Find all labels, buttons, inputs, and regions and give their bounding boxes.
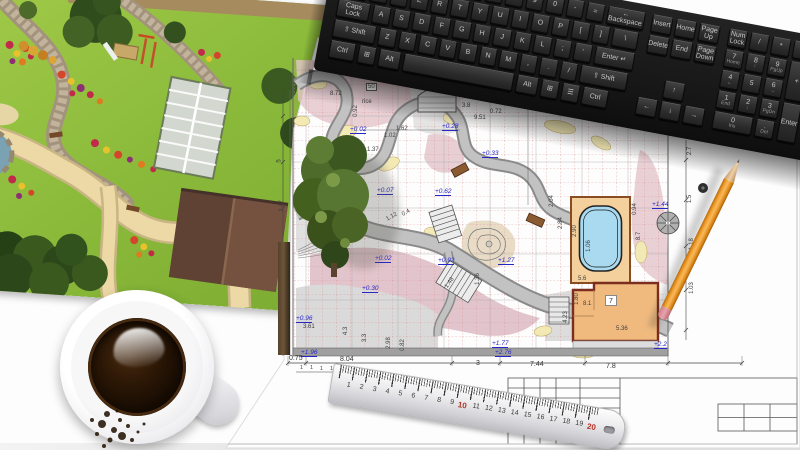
keyboard-key: Alt: [515, 74, 540, 96]
coffee-reflection: [111, 324, 167, 371]
keyboard-key: ⊞: [539, 79, 560, 100]
keyboard-key: 8: [504, 0, 524, 8]
keyboard-key: N: [478, 46, 498, 67]
keyboard-key: A: [371, 5, 391, 26]
keyboard-key: O: [530, 13, 550, 34]
keyboard-key: ': [572, 42, 592, 63]
keyboard-key: C: [417, 35, 437, 56]
keyboard-key: 2↓: [737, 94, 759, 115]
keyboard-key: Insert: [650, 14, 674, 36]
ruler-number: 20: [582, 421, 596, 432]
keyboard-key: .: [538, 57, 558, 78]
keyboard-key: 6→: [762, 77, 784, 98]
keyboard-key: ;: [552, 39, 572, 60]
keyboard-key: ,: [518, 54, 538, 75]
keyboard-key: 1End: [715, 90, 737, 111]
keyboard-key: P: [550, 17, 570, 38]
keyboard-key: H: [472, 24, 492, 45]
keyboard-key: I: [510, 9, 530, 30]
keyboard-key: Page Down: [693, 43, 717, 65]
keyboard-key: Y: [470, 2, 490, 23]
keyboard-key: /: [748, 32, 770, 53]
keyboard-key: \: [611, 28, 640, 50]
keyboard-key: W: [389, 0, 409, 8]
keyboard-key: K: [512, 31, 532, 52]
keyboard-arrow-up: ↑: [662, 80, 686, 102]
keyboard-key: Enter: [776, 102, 800, 144]
keyboard-key: =: [585, 2, 605, 23]
coffee-grounds: [62, 406, 192, 450]
keyboard-key: Ctrl: [580, 86, 609, 108]
keyboard-key: /: [558, 61, 578, 82]
keyboard-key: B: [457, 42, 477, 63]
keyboard-key: ↓: [658, 101, 682, 123]
keyboard-key: M: [498, 50, 518, 71]
keyboard-key: U: [490, 6, 510, 27]
keyboard-key: →: [682, 105, 706, 127]
keyboard-key: 3PgDn: [758, 98, 780, 119]
keyboard-key: ↑: [662, 80, 686, 102]
keyboard-key: 8↑: [744, 53, 766, 74]
keyboard-key: End: [670, 39, 694, 61]
keyboard-arrow-row: ←↓→: [635, 97, 706, 127]
keyboard-key: G: [451, 20, 471, 41]
keyboard-key: D: [411, 12, 431, 33]
keyboard-key: Z: [377, 27, 397, 48]
keyboard-key: 7Home: [723, 49, 745, 70]
keyboard-key: 4←: [719, 69, 741, 90]
keyboard-key: S: [391, 9, 411, 30]
house-footprint: [573, 283, 658, 352]
keyboard-key: ]: [590, 24, 610, 45]
keyboard-key: J: [492, 27, 512, 48]
keyboard-key: R: [429, 0, 449, 15]
keyboard-key: E: [409, 0, 429, 12]
keyboard-key: Page Up: [697, 23, 721, 45]
keyboard-key: T: [449, 0, 469, 19]
desk-photo: 8.720.921.621.021.373.89.510.722.72.122.…: [0, 0, 800, 450]
keyboard-key: *: [770, 36, 792, 57]
keyboard-key: 0: [545, 0, 565, 15]
keyboard-key: 5: [741, 73, 763, 94]
keyboard-key: Alt: [377, 49, 402, 71]
keyboard-key: ☰: [560, 83, 581, 104]
keyboard-key: L: [532, 35, 552, 56]
keyboard-key: -: [791, 40, 800, 61]
keyboard-key: V: [437, 39, 457, 60]
prop-tree: [285, 125, 407, 283]
keyboard-key: 9: [524, 0, 544, 12]
keyboard-key: -: [565, 0, 585, 19]
keyboard-key: Delete: [646, 35, 670, 57]
house-stairs: [549, 297, 569, 324]
keyboard-key: Ctrl: [328, 40, 357, 62]
keyboard-key: [: [570, 21, 590, 42]
keyboard-key: Q: [369, 0, 389, 4]
keyboard-key: F: [431, 16, 451, 37]
ruler-hanging-slot: [603, 425, 615, 434]
keyboard-key: 9PgUp: [766, 57, 788, 78]
coffee-surface: [88, 318, 186, 416]
keyboard-key: X: [397, 31, 417, 52]
keyboard-key: Num Lock: [727, 28, 749, 49]
pool-area: [571, 197, 630, 283]
keyboard-key: .Del: [754, 119, 776, 140]
keyboard-key: ⊞: [356, 45, 377, 66]
keyboard-key: ←: [635, 97, 659, 119]
keyboard-key: Caps Lock: [335, 0, 371, 22]
keyboard-key: 7: [484, 0, 504, 4]
keyboard-key: Home: [673, 18, 697, 40]
